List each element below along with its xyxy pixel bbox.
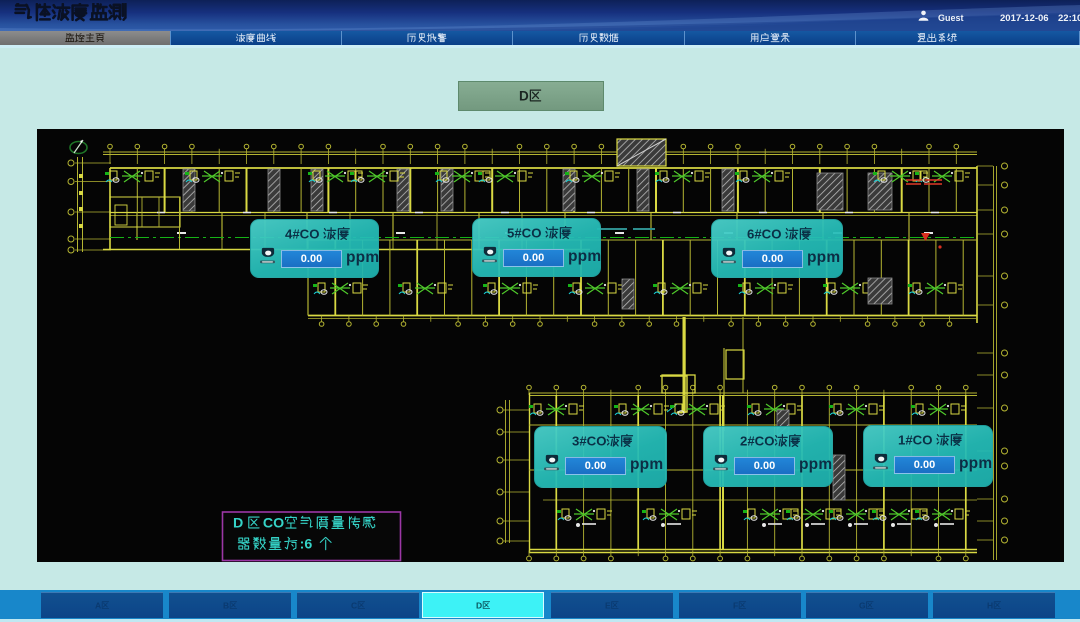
svg-text:B: B <box>223 601 229 610</box>
svg-text:C: C <box>351 601 357 610</box>
svg-text:D: D <box>476 601 482 610</box>
svg-text:4#CO: 4#CO <box>285 227 319 241</box>
svg-text::6: :6 <box>300 537 313 553</box>
svg-text:D: D <box>233 516 243 532</box>
svg-text:A: A <box>95 601 101 610</box>
svg-text:E: E <box>605 601 611 610</box>
svg-text:CO: CO <box>263 516 284 532</box>
svg-text:D: D <box>519 89 529 104</box>
svg-text:2#CO: 2#CO <box>740 434 774 448</box>
svg-text:5#CO: 5#CO <box>507 226 541 240</box>
svg-text:G: G <box>859 601 866 610</box>
svg-text:1#CO: 1#CO <box>898 433 932 447</box>
svg-text:H: H <box>987 601 993 610</box>
svg-text:3#CO: 3#CO <box>572 434 606 448</box>
svg-text:6#CO: 6#CO <box>747 227 781 241</box>
svg-text:F: F <box>733 601 738 610</box>
